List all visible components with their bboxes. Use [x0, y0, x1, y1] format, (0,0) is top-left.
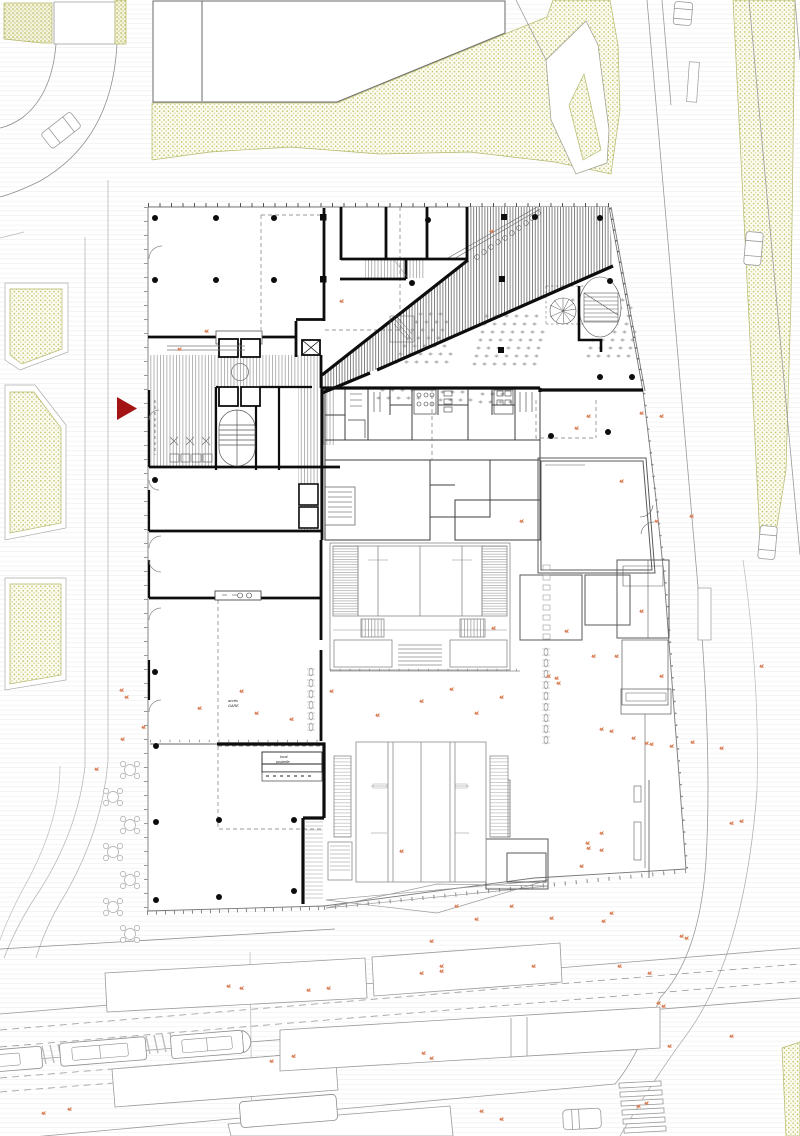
svg-text:local: local: [280, 755, 288, 759]
svg-text:accès: accès: [228, 699, 238, 703]
svg-text:GARE: GARE: [228, 704, 239, 708]
svg-text:poubelle: poubelle: [275, 760, 290, 764]
